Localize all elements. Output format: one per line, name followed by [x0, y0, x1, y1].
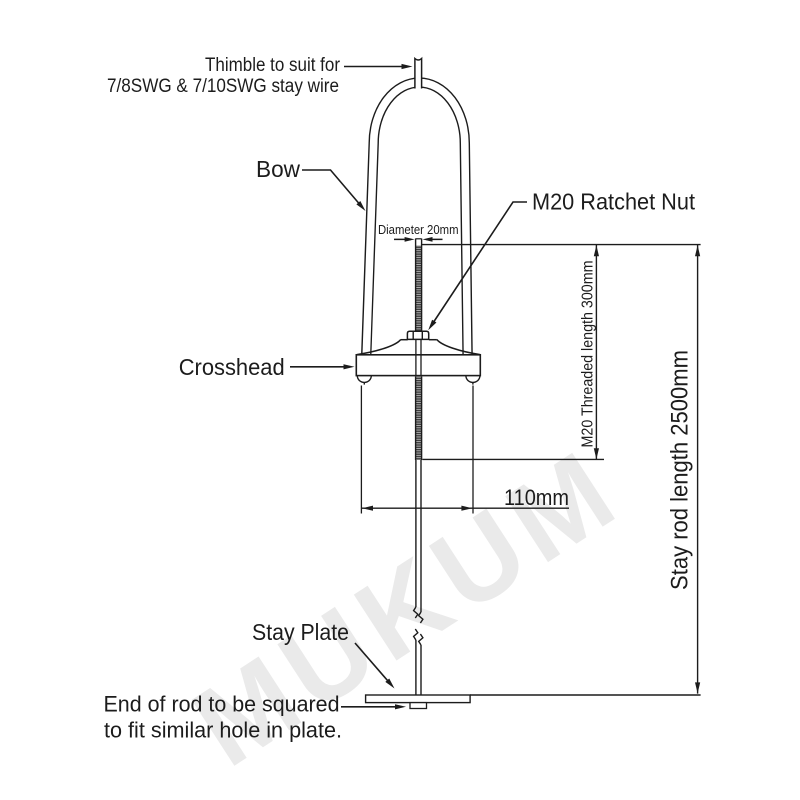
- svg-text:to fit similar hole in plate.: to fit similar hole in plate.: [104, 718, 342, 743]
- svg-text:Crosshead: Crosshead: [179, 354, 285, 380]
- svg-text:7/8SWG & 7/10SWG stay wire: 7/8SWG & 7/10SWG stay wire: [107, 76, 339, 97]
- svg-text:Bow: Bow: [256, 156, 300, 182]
- svg-text:Stay rod length 2500mm: Stay rod length 2500mm: [667, 350, 694, 590]
- svg-text:M20 Threaded length 300mm: M20 Threaded length 300mm: [580, 261, 597, 448]
- svg-text:Thimble to suit for: Thimble to suit for: [205, 55, 341, 76]
- svg-text:110mm: 110mm: [504, 485, 569, 510]
- svg-text:M20 Ratchet Nut: M20 Ratchet Nut: [532, 189, 696, 215]
- svg-text:End of rod to be squared: End of rod to be squared: [104, 692, 340, 717]
- svg-text:Diameter 20mm: Diameter 20mm: [378, 222, 459, 237]
- svg-text:Stay Plate: Stay Plate: [252, 619, 349, 645]
